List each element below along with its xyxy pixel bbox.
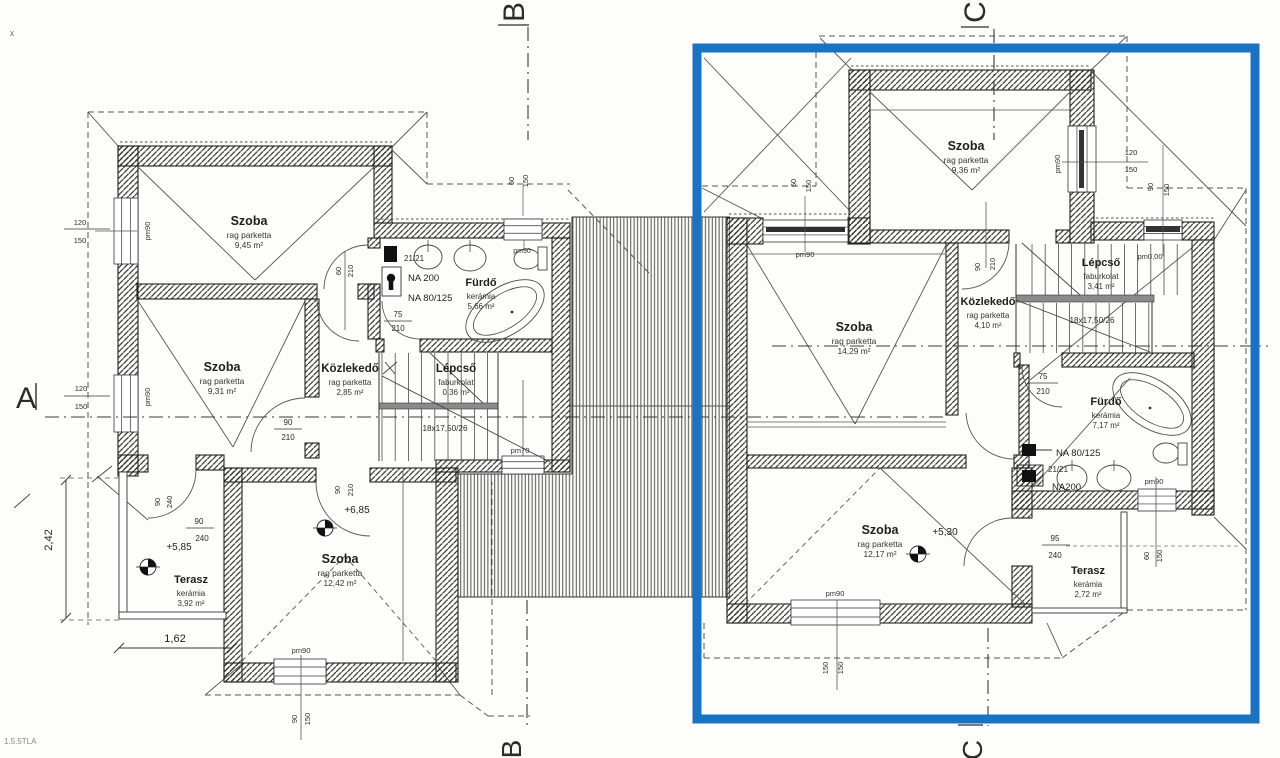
svg-text:210: 210 [281,433,295,442]
svg-text:150: 150 [74,236,87,245]
svg-text:Fürdő: Fürdő [465,277,496,289]
svg-text:12,42 m²: 12,42 m² [323,578,356,588]
svg-text:75: 75 [1039,372,1048,381]
svg-text:90: 90 [333,486,342,494]
svg-text:pm70: pm70 [511,446,530,455]
svg-text:150: 150 [303,713,312,726]
svg-text:pm90: pm90 [1145,477,1164,486]
svg-text:Lépcső: Lépcső [1082,257,1121,269]
svg-text:Fürdő: Fürdő [1090,396,1121,408]
svg-text:240: 240 [165,496,174,509]
svg-text:rag parketta: rag parketta [329,378,372,387]
svg-text:150: 150 [804,180,813,193]
svg-text:Szoba: Szoba [204,360,242,374]
svg-text:210: 210 [1036,387,1050,396]
svg-text:150: 150 [1155,550,1164,563]
svg-text:pm90: pm90 [826,589,845,598]
svg-text:0,36 m²: 0,36 m² [442,388,469,397]
svg-text:rag parketta: rag parketta [832,336,877,346]
svg-text:4,10 m²: 4,10 m² [974,321,1001,330]
svg-text:Terasz: Terasz [1071,565,1106,577]
svg-text:150: 150 [75,402,88,411]
svg-text:+5,85: +5,85 [166,542,192,553]
svg-text:Szoba: Szoba [862,523,900,537]
svg-text:rag parketta: rag parketta [967,311,1010,320]
svg-text:1.5.5TLA: 1.5.5TLA [4,737,37,746]
svg-text:+6,85: +6,85 [344,505,370,516]
svg-text:240: 240 [195,534,209,543]
svg-text:Szoba: Szoba [948,139,986,153]
svg-text:21/21: 21/21 [404,254,425,263]
svg-text:Szoba: Szoba [836,320,874,334]
svg-text:rag parketta: rag parketta [227,230,272,240]
svg-text:2,85 m²: 2,85 m² [336,388,363,397]
svg-text:90: 90 [195,517,204,526]
svg-text:150: 150 [821,662,830,675]
svg-text:2,42: 2,42 [43,529,55,550]
svg-text:faburkolat: faburkolat [1083,272,1119,281]
svg-text:C: C [959,1,992,23]
svg-text:kerámia: kerámia [1074,580,1103,589]
svg-text:pm0,00: pm0,00 [1137,252,1162,261]
svg-text:9,36 m²: 9,36 m² [952,165,981,175]
svg-text:150: 150 [1125,165,1138,174]
svg-text:B: B [496,740,527,758]
svg-text:9,45 m²: 9,45 m² [235,240,264,250]
svg-text:3,92 m²: 3,92 m² [177,599,204,608]
svg-text:18x17,50/26: 18x17,50/26 [422,424,468,433]
svg-text:240: 240 [1048,551,1062,560]
svg-text:Szoba: Szoba [231,214,269,228]
svg-text:rag parketta: rag parketta [858,539,903,549]
svg-text:NA 80/125: NA 80/125 [408,293,452,304]
svg-text:pm90: pm90 [292,646,311,655]
svg-text:3,41 m²: 3,41 m² [1087,282,1114,291]
svg-text:120: 120 [75,384,88,393]
svg-text:2,72 m²: 2,72 m² [1074,590,1101,599]
svg-text:60: 60 [789,179,798,187]
svg-text:60: 60 [507,177,516,185]
svg-text:Terasz: Terasz [174,574,209,586]
svg-text:120: 120 [1125,148,1138,157]
svg-text:Szoba: Szoba [322,552,360,566]
svg-text:210: 210 [346,484,355,497]
svg-text:NA200: NA200 [1052,482,1081,493]
svg-text:pm90: pm90 [513,248,531,255]
svg-text:90: 90 [153,498,162,506]
svg-text:5,66 m²: 5,66 m² [467,302,494,311]
svg-text:x: x [10,28,15,38]
svg-text:A: A [16,382,36,415]
svg-text:14,29 m²: 14,29 m² [837,346,870,356]
svg-text:60: 60 [1142,552,1151,560]
svg-text:95: 95 [1051,534,1060,543]
svg-text:12,17 m²: 12,17 m² [863,549,896,559]
svg-text:9,31 m²: 9,31 m² [208,386,237,396]
svg-text:rag parketta: rag parketta [200,376,245,386]
svg-text:210: 210 [988,258,997,271]
svg-text:C: C [957,740,988,758]
svg-text:pm90: pm90 [143,222,152,241]
svg-text:Közlekedő: Közlekedő [321,363,379,375]
svg-text:60: 60 [334,267,343,275]
svg-text:pm90: pm90 [1053,155,1062,174]
svg-text:210: 210 [346,265,355,278]
svg-text:90: 90 [284,418,293,427]
svg-text:rag parketta: rag parketta [318,568,363,578]
svg-text:90: 90 [973,263,982,271]
svg-text:90: 90 [290,715,299,723]
svg-text:21/21: 21/21 [1048,465,1069,474]
svg-text:150: 150 [521,175,530,188]
svg-text:120: 120 [74,218,87,227]
svg-text:NA 200: NA 200 [408,273,439,284]
svg-text:kerámia: kerámia [177,589,206,598]
svg-text:B: B [498,2,531,22]
svg-text:18x17,50/26: 18x17,50/26 [1069,316,1115,325]
svg-text:Közlekedő: Közlekedő [960,296,1015,308]
svg-text:rag parketta: rag parketta [944,155,989,165]
svg-text:7,17 m²: 7,17 m² [1092,421,1119,430]
svg-text:90: 90 [1146,183,1155,191]
svg-text:+5,30: +5,30 [932,527,958,538]
svg-text:1,62: 1,62 [164,633,185,645]
svg-text:Lépcső: Lépcső [436,363,476,375]
svg-text:pm90: pm90 [143,388,152,407]
svg-text:faburkolat: faburkolat [438,378,474,387]
svg-text:75: 75 [394,310,403,319]
svg-text:NA 80/125: NA 80/125 [1056,448,1100,459]
svg-text:150: 150 [836,662,845,675]
svg-text:kerámia: kerámia [467,292,496,301]
